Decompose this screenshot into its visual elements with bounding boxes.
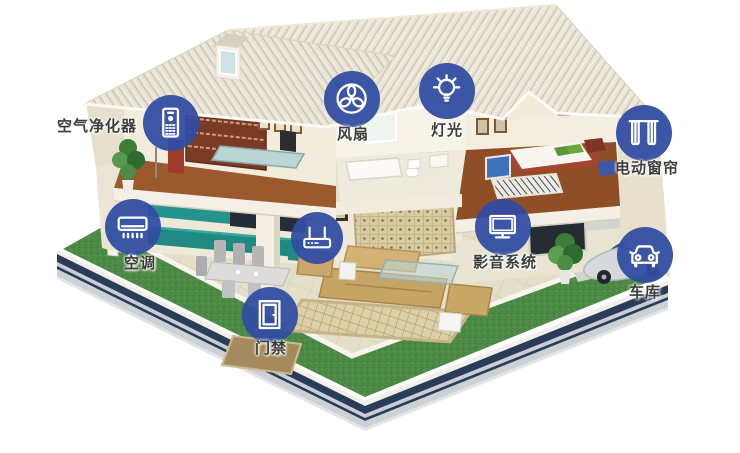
air-purifier-icon bbox=[151, 103, 190, 142]
router-icon bbox=[299, 220, 335, 256]
fan-marker[interactable] bbox=[324, 71, 380, 127]
curtain-marker[interactable] bbox=[616, 105, 672, 161]
light-label: 灯光 bbox=[407, 121, 487, 140]
curtain-icon bbox=[624, 113, 663, 152]
av-system-icon bbox=[483, 207, 522, 246]
smart-home-diagram: 空气净化器 风扇 灯光 电动窗帘 空调 影音系统 车库 门禁 bbox=[0, 0, 740, 453]
ac-label: 空调 bbox=[100, 254, 180, 273]
garage-icon bbox=[625, 235, 664, 274]
door-label: 门禁 bbox=[231, 339, 311, 358]
door-icon bbox=[250, 295, 289, 334]
fan-label: 风扇 bbox=[313, 125, 393, 144]
av-system-label: 影音系统 bbox=[445, 253, 565, 272]
air-purifier-marker[interactable] bbox=[143, 95, 199, 151]
fan-icon bbox=[332, 79, 371, 118]
ac-icon bbox=[113, 207, 152, 246]
garage-label: 车库 bbox=[605, 283, 685, 302]
av-system-marker[interactable] bbox=[475, 199, 531, 255]
curtain-label: 电动窗帘 bbox=[587, 159, 707, 178]
router-marker[interactable] bbox=[291, 212, 343, 264]
air-purifier-label: 空气净化器 bbox=[22, 117, 137, 136]
ac-marker[interactable] bbox=[105, 199, 161, 255]
light-icon bbox=[427, 71, 466, 110]
garage-marker[interactable] bbox=[617, 227, 673, 283]
door-marker[interactable] bbox=[242, 287, 298, 343]
light-marker[interactable] bbox=[419, 63, 475, 119]
